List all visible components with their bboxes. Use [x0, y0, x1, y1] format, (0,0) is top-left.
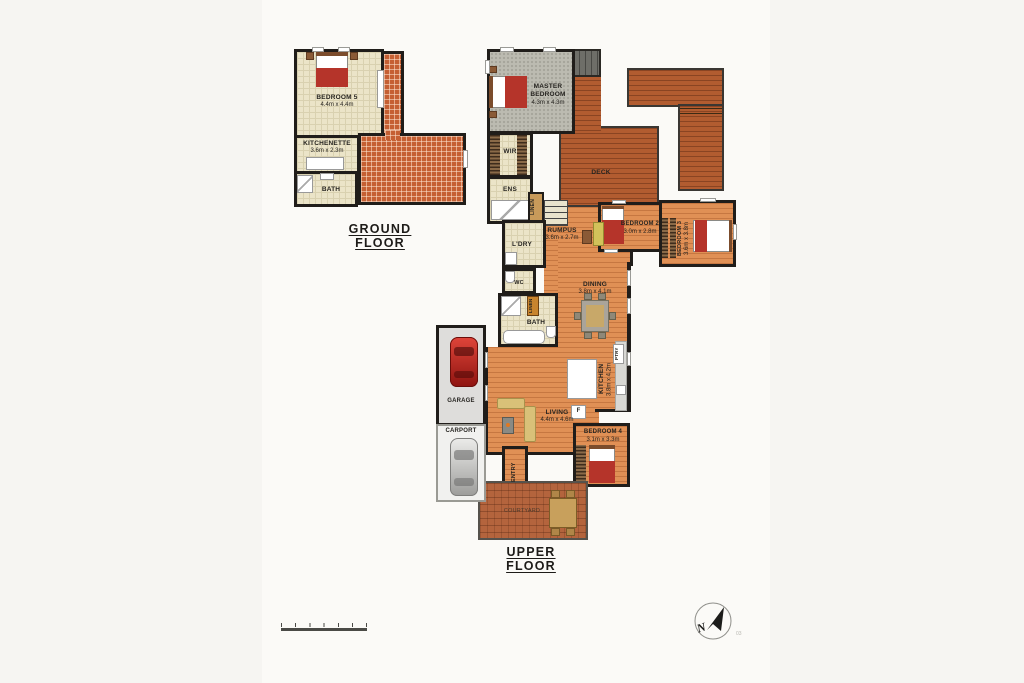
room-label-courtyard: COURTYARD [498, 508, 546, 515]
deck-step-line [680, 113, 722, 114]
room-label-garage: GARAGE [438, 398, 484, 406]
wall-segment [630, 252, 633, 266]
window-segment [485, 60, 490, 74]
room-dims: 4.4m x 4.6m [531, 417, 583, 425]
dining-table-icon [581, 300, 609, 332]
room-name: KITCHEN [598, 364, 605, 394]
room-label-deck: DECK [586, 169, 616, 177]
room-label-ptry: PTRY [614, 345, 620, 363]
window-segment [500, 47, 514, 52]
chair-icon [551, 490, 560, 498]
room-name: BEDROOM 4 [584, 429, 622, 435]
outdoor-table-icon [549, 498, 577, 528]
room-label-master: MASTER BEDROOM 4.3m x 4.3m [529, 83, 567, 108]
room-dims: 3.8m x 4.2m [606, 357, 614, 401]
wardrobe-icon [670, 218, 676, 258]
scale-bar [281, 628, 367, 631]
door-gap [377, 70, 384, 108]
room-label-bedroom3: BEDROOM 3 3.6m x 3.8m [677, 217, 692, 259]
room-name: RUMPUS [547, 227, 576, 234]
room-label-bedroom5: BEDROOM 5 4.4m x 4.4m [307, 94, 367, 110]
room-name: BEDROOM 3 [677, 220, 683, 255]
room-label-rumpus: RUMPUS 3.6m x 2.7m [540, 227, 584, 243]
room-label-bath: BATH [522, 319, 550, 327]
shower-icon [297, 175, 313, 193]
room-label-ldry: L'DRY [505, 241, 539, 249]
deck-step-line [680, 108, 722, 109]
silver-car-icon [450, 438, 478, 496]
ground-floor-title: GROUND FLOOR [330, 222, 430, 250]
door-gap [485, 352, 488, 368]
room-label-dining: DINING 3.8m x 4.1m [574, 281, 616, 297]
sink-icon [616, 385, 626, 395]
north-compass-icon: N [690, 600, 738, 646]
room-dims: 3.1m x 3.3m [580, 437, 626, 445]
room-label-ens: ENS [497, 186, 523, 194]
room-name: DINING [583, 281, 607, 288]
nightstand-icon [489, 66, 497, 73]
floorplan-canvas: BEDROOM 5 4.4m x 4.4m KITCHENETTE 3.6m x… [0, 0, 1024, 683]
window-segment [485, 385, 488, 401]
chair-icon [598, 332, 606, 339]
window-segment [612, 200, 626, 204]
window-segment [627, 298, 631, 314]
deck-main [559, 126, 659, 207]
lounge-icon [593, 222, 604, 246]
kitchen-island [567, 359, 597, 399]
compass-n-letter: N [694, 619, 709, 636]
sofa-icon [497, 398, 525, 409]
room-label-wc: WC [508, 280, 530, 287]
room-dims: 3.6m x 2.3m [298, 148, 356, 156]
room-dims: 4.3m x 4.3m [529, 100, 567, 108]
room-label-carport: CARPORT [438, 428, 484, 436]
room-name: LIVING [546, 409, 569, 416]
stairs-icon [544, 200, 568, 226]
chair-icon [566, 528, 575, 536]
chair-icon [566, 490, 575, 498]
room-dims: 3.8m x 4.1m [574, 289, 616, 297]
vanity-icon [320, 173, 334, 180]
patio-terracotta-main [358, 133, 466, 205]
room-name: KITCHENETTE [303, 140, 351, 147]
window-segment [627, 352, 631, 366]
chair-icon [609, 312, 616, 320]
room-name: BEDROOM 5 [316, 94, 357, 101]
shower-icon [501, 296, 521, 316]
bed-icon [489, 76, 527, 108]
room-label-bedroom2: BEDROOM 2 3.0m x 2.8m [620, 221, 660, 237]
chair-icon [551, 528, 560, 536]
stairs-icon [573, 49, 601, 77]
room-label-kitchen: KITCHEN 3.8m x 4.2m [598, 357, 614, 401]
shower-icon [491, 200, 529, 220]
nightstand-icon [350, 52, 358, 60]
window-segment [543, 47, 556, 52]
deck-upper-arm [627, 68, 724, 107]
upper-floor-title: UPPER FLOOR [481, 545, 581, 573]
door-gap [604, 249, 618, 253]
chair-icon [584, 332, 592, 339]
room-label-wir: WIR [496, 148, 524, 156]
window-segment [627, 270, 631, 286]
room-label-kitchenette: KITCHENETTE 3.6m x 2.3m [298, 140, 356, 156]
nightstand-icon [306, 52, 314, 60]
room-name: BEDROOM 2 [621, 221, 659, 227]
patio-terracotta-arm [381, 51, 404, 138]
wardrobe-icon [576, 445, 586, 483]
wardrobe-icon [662, 218, 668, 258]
window-segment [700, 198, 716, 202]
bed-icon [316, 52, 348, 87]
bed-icon [693, 220, 732, 252]
room-dims: 3.0m x 2.8m [620, 229, 660, 237]
washer-icon [505, 252, 517, 265]
nightstand-icon [489, 111, 497, 118]
deck-right-arm [678, 104, 724, 191]
room-label-bedroom4: BEDROOM 4 3.1m x 3.3m [580, 429, 626, 445]
hall-wood [573, 75, 601, 131]
room-label-living: LIVING 4.4m x 4.6m [531, 409, 583, 425]
scale-bar-ticks [281, 623, 367, 627]
bathtub-icon [503, 330, 545, 344]
window-segment [338, 47, 350, 52]
room-dims: 3.6m x 3.8m [684, 217, 692, 259]
toilet-icon [546, 326, 556, 338]
room-name: BATH [322, 186, 340, 193]
kitchenette-counter [306, 157, 344, 170]
window-segment [312, 47, 324, 52]
bed-icon [589, 445, 615, 483]
watermark-text: 03 [736, 631, 742, 637]
window-segment [733, 224, 737, 240]
room-label-ground-bath: BATH [316, 186, 346, 194]
fireplace-icon [502, 417, 514, 434]
patio-seam-patch [385, 130, 400, 140]
room-name: MASTER BEDROOM [530, 83, 565, 98]
red-car-icon [450, 337, 478, 387]
wall-segment [487, 452, 579, 455]
room-dims: 4.4m x 4.4m [307, 102, 367, 110]
room-label-entry: ENTRY [511, 458, 518, 486]
room-dims: 3.6m x 2.7m [540, 235, 584, 243]
window-segment [463, 150, 468, 168]
room-label-linen2: LINEN [528, 298, 534, 314]
chair-icon [574, 312, 581, 320]
room-label-linen: LINEN [530, 195, 537, 219]
